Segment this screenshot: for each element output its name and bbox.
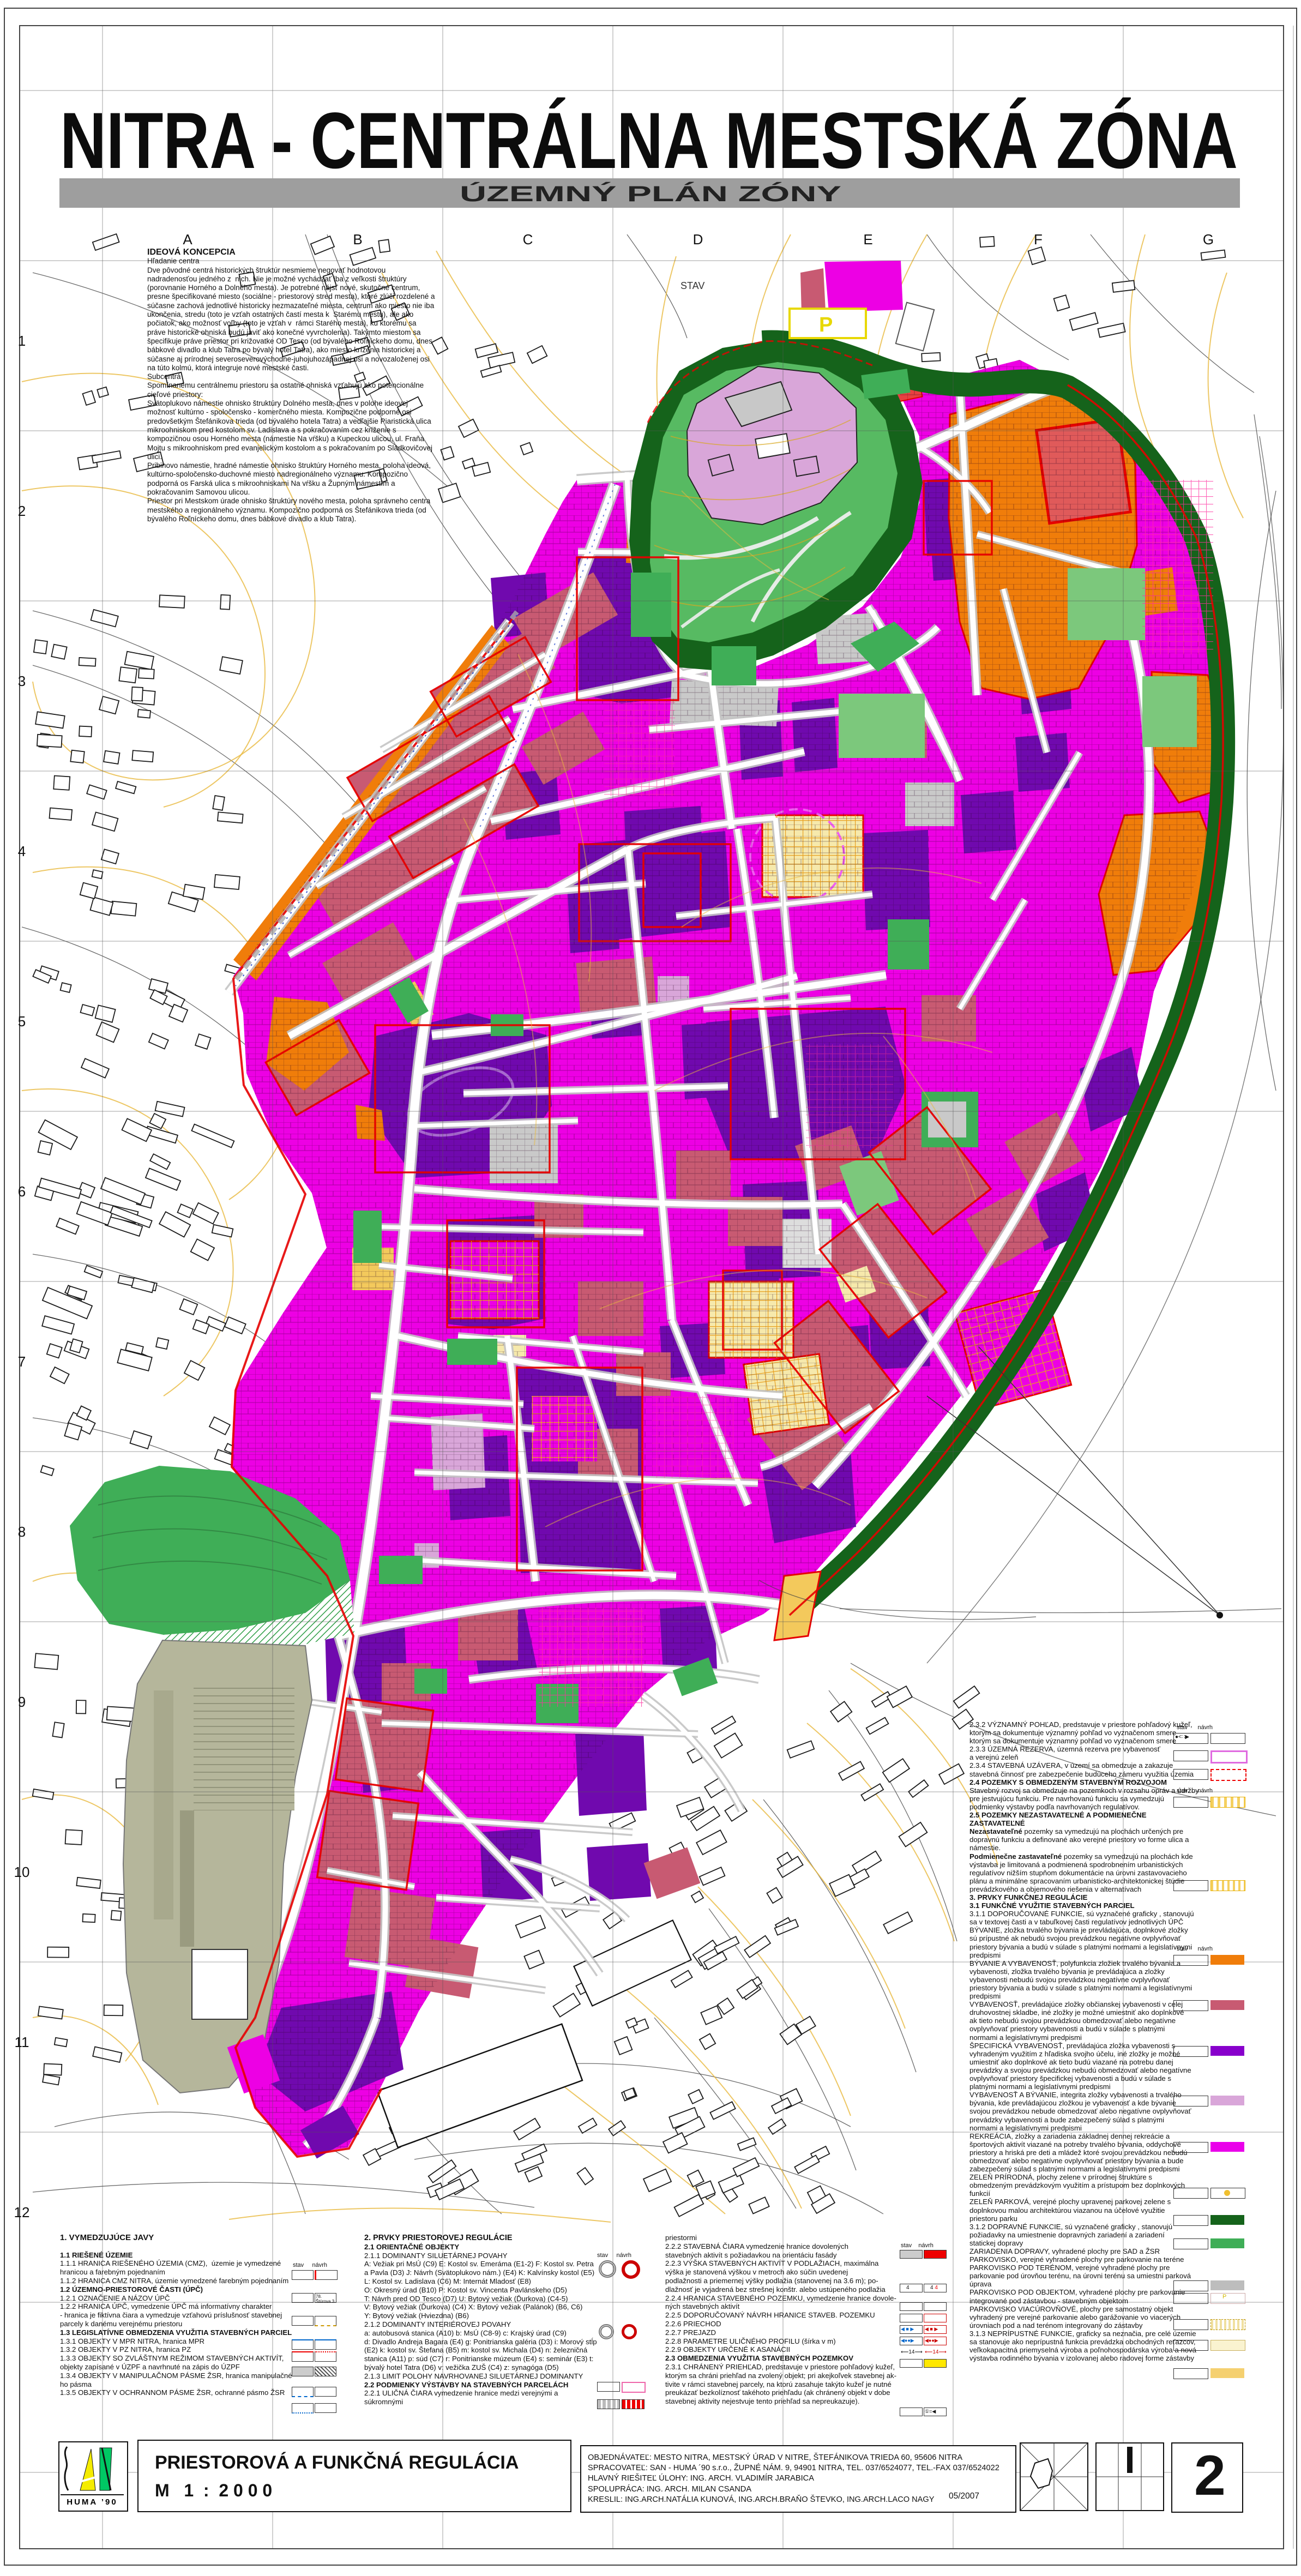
svg-text:STAV: STAV [680,280,704,291]
svg-text:B: B [353,231,362,248]
svg-text:D: D [693,231,703,248]
svg-text:A: A [183,231,192,248]
svg-text:6: 6 [18,1183,26,1200]
svg-text:1: 1 [18,333,26,349]
svg-text:ÚZEMNÝ PLÁN ZÓNY: ÚZEMNÝ PLÁN ZÓNY [460,181,842,206]
svg-text:9: 9 [18,1694,26,1710]
svg-text:3: 3 [18,673,26,689]
svg-text:P: P [819,314,833,336]
svg-text:HUMA ’90: HUMA ’90 [67,2497,117,2507]
svg-text:10: 10 [14,1864,30,1880]
svg-text:G: G [1203,231,1214,248]
svg-text:E: E [863,231,872,248]
svg-text:4: 4 [18,843,26,859]
svg-text:C: C [523,231,533,248]
svg-text:2: 2 [18,503,26,519]
svg-text:5: 5 [18,1013,26,1030]
svg-text:7: 7 [18,1353,26,1370]
svg-text:8: 8 [18,1524,26,1540]
svg-text:12: 12 [14,2204,30,2220]
svg-text:11: 11 [15,2034,29,2050]
svg-text:NITRA - CENTRÁLNA MESTSKÁ ZÓNA: NITRA - CENTRÁLNA MESTSKÁ ZÓNA [60,96,1238,185]
svg-text:F: F [1034,231,1043,248]
